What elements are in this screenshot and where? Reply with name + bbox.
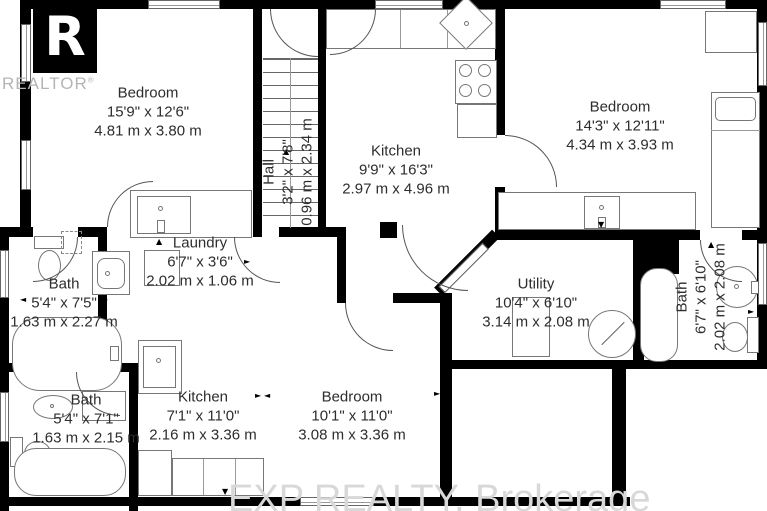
sink-icon — [143, 346, 176, 388]
room-label-kitchen-main: Kitchen 9'9" x 16'3" 2.97 m x 4.96 m — [342, 142, 450, 199]
door-arc-icon — [402, 225, 468, 291]
room-dim-ft: 7'1" x 11'0" — [149, 407, 257, 426]
burner — [478, 84, 491, 97]
room-dim-m: 4.34 m x 3.93 m — [566, 136, 674, 155]
blanket-line — [711, 130, 760, 131]
room-label-bedroom-lower: Bedroom 10'1" x 11'0" 3.08 m x 3.36 m — [298, 388, 406, 445]
counter — [172, 458, 264, 496]
column — [380, 222, 397, 238]
room-dim-ft: 5'4" x 7'1" — [32, 410, 140, 429]
window-icon — [21, 140, 31, 190]
room-dim-ft: 3'2" x 7'8" — [279, 118, 298, 226]
window-icon — [758, 22, 767, 86]
room-dim-m: 2.02 m x 2.08 m — [711, 243, 730, 351]
wall — [393, 293, 443, 303]
window-icon — [375, 0, 443, 9]
room-name: Bedroom — [94, 84, 202, 103]
room-dim-ft: 9'9" x 16'3" — [342, 161, 450, 180]
room-name: Bedroom — [298, 388, 406, 407]
room-dim-ft: 15'9" x 12'6" — [94, 103, 202, 122]
counter-divider — [235, 459, 236, 495]
drain-dot — [156, 358, 161, 363]
faucet-icon — [110, 346, 119, 361]
wall — [337, 227, 346, 303]
window-icon — [0, 392, 9, 442]
measure-arrow-icon: ▼ — [598, 221, 604, 229]
realtor-wordmark-text: REALTOR — [2, 74, 88, 93]
room-dim-ft: 10'1" x 11'0" — [298, 407, 406, 426]
wall — [318, 0, 326, 237]
room-name: Bath — [10, 275, 118, 294]
wall — [445, 360, 767, 369]
measure-arrow-icon: ◄ — [264, 392, 270, 400]
room-label-bath-lower-left: Bath 5'4" x 7'1" 1.63 m x 2.15 m — [32, 391, 140, 448]
room-dim-m: 1.63 m x 2.27 m — [10, 313, 118, 332]
dresser — [705, 11, 757, 53]
room-label-laundry: Laundry 6'7" x 3'6" 2.02 m x 1.06 m — [146, 234, 254, 291]
room-name: Laundry — [146, 234, 254, 253]
room-dim-ft: 14'3" x 12'11" — [566, 117, 674, 136]
room-dim-ft: 5'4" x 7'5" — [10, 294, 118, 313]
bathtub-icon — [14, 448, 126, 496]
room-dim-m: 2.97 m x 4.96 m — [342, 180, 450, 199]
window-icon — [0, 250, 9, 298]
realtor-logo-letter: R — [44, 10, 86, 64]
registered-mark: ® — [88, 75, 95, 84]
room-dim-m: 3.08 m x 3.36 m — [298, 426, 406, 445]
room-dim-ft: 6'7" x 6'10" — [692, 243, 711, 351]
counter-divider — [203, 459, 204, 495]
pillow — [715, 97, 756, 121]
room-label-bath-left: Bath 5'4" x 7'5" 1.63 m x 2.27 m — [10, 275, 118, 332]
room-name: Utility — [482, 275, 590, 294]
room-label-bedroom-top-right: Bedroom 14'3" x 12'11" 4.34 m x 3.93 m — [566, 98, 674, 155]
burner — [478, 64, 491, 77]
window-icon — [758, 243, 767, 305]
room-dim-m: 4.81 m x 3.80 m — [94, 122, 202, 141]
room-label-bedroom-top-left: Bedroom 15'9" x 12'6" 4.81 m x 3.80 m — [94, 84, 202, 141]
room-label-bath-right: Bath 6'7" x 6'10" 2.02 m x 2.08 m — [673, 243, 730, 351]
room-dim-m: 2.16 m x 3.36 m — [149, 426, 257, 445]
realtor-logo: R — [33, 0, 97, 73]
drain-dot — [158, 206, 163, 211]
door-arc-icon — [505, 135, 557, 187]
counter-divider — [400, 10, 401, 48]
room-name: Bath — [32, 391, 140, 410]
window-icon — [660, 0, 726, 9]
room-dim-ft: 10'4" x 6'10" — [482, 294, 590, 313]
drain-dot — [734, 284, 739, 289]
room-label-kitchen-lower: Kitchen 7'1" x 11'0" 2.16 m x 3.36 m — [149, 388, 257, 445]
burner — [459, 64, 472, 77]
room-label-utility: Utility 10'4" x 6'10" 3.14 m x 2.08 m — [482, 275, 590, 332]
wall — [612, 360, 626, 506]
drain-dot — [464, 21, 469, 26]
wall — [742, 230, 767, 240]
room-dim-m: 0.96 m x 2.34 m — [298, 118, 317, 226]
measure-arrow-icon: ► — [748, 308, 754, 316]
door-arc-icon — [107, 181, 153, 227]
door-arc-icon — [270, 9, 318, 57]
door-arc-icon — [345, 303, 393, 351]
counter — [457, 104, 497, 138]
drain-dot — [599, 205, 604, 210]
room-label-hall: Hall 3'2" x 7'8" 0.96 m x 2.34 m — [260, 118, 317, 226]
toilet-icon — [747, 317, 759, 353]
floorplan: ▲ ▼ ▼ ► ◄ ► ► ◄ ► ▲ ► ▲ Bedroom 15'9" x … — [0, 0, 767, 511]
room-name: Kitchen — [342, 142, 450, 161]
wall — [279, 227, 345, 237]
room-dim-ft: 6'7" x 3'6" — [146, 253, 254, 272]
room-name: Kitchen — [149, 388, 257, 407]
cabinet — [138, 450, 172, 496]
room-dim-m: 3.14 m x 2.08 m — [482, 313, 590, 332]
room-name: Hall — [260, 118, 279, 226]
burner — [459, 84, 472, 97]
room-dim-m: 1.63 m x 2.15 m — [32, 429, 140, 448]
faucet-icon — [157, 220, 165, 233]
window-icon — [148, 0, 220, 9]
measure-arrow-icon: ► — [434, 390, 440, 398]
measure-arrow-icon: ▼ — [222, 488, 228, 496]
wall — [440, 293, 452, 505]
wall — [495, 230, 700, 240]
room-name: Bedroom — [566, 98, 674, 117]
wall — [337, 293, 345, 303]
room-dim-m: 2.02 m x 1.06 m — [146, 272, 254, 291]
realtor-wordmark: REALTOR® — [2, 74, 95, 94]
window-icon — [300, 497, 374, 506]
room-name: Bath — [673, 243, 692, 351]
